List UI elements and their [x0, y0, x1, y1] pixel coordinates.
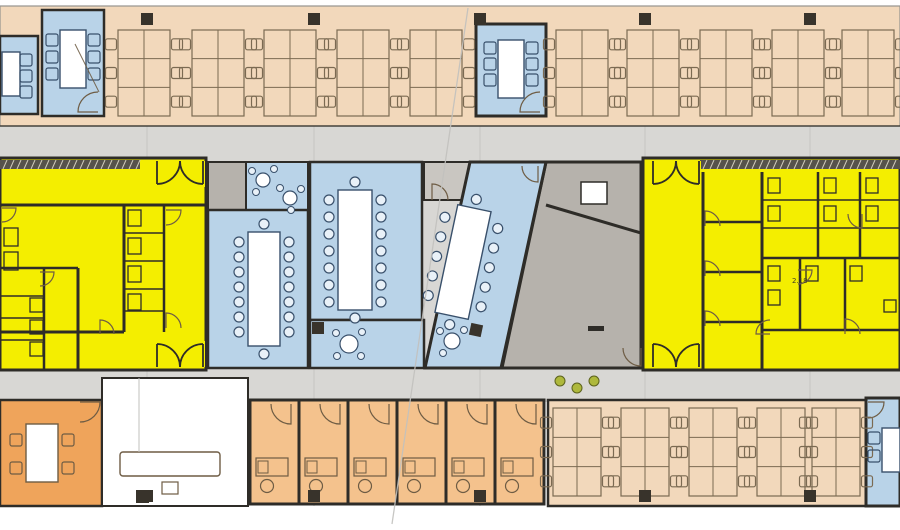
- chair: [324, 229, 334, 239]
- chair: [234, 252, 244, 262]
- chair: [333, 330, 340, 337]
- core-zone-left: [0, 158, 206, 370]
- chair: [324, 212, 334, 222]
- desk-cluster: [688, 30, 765, 116]
- chair: [376, 280, 386, 290]
- chair: [376, 212, 386, 222]
- chair: [253, 189, 260, 196]
- table: [882, 428, 900, 472]
- open-office-bottom: [548, 400, 866, 506]
- structural-column: [804, 13, 816, 25]
- round-table: [256, 173, 270, 187]
- chair: [298, 186, 305, 193]
- desk-cluster: [325, 30, 402, 116]
- table: [120, 452, 220, 476]
- office-floor-plan: 2.18: [0, 0, 900, 530]
- chair: [249, 168, 256, 175]
- chair: [359, 329, 366, 336]
- room-number-label: 2.18: [792, 277, 808, 285]
- structural-column: [639, 13, 651, 25]
- conference-table-2: [324, 177, 386, 323]
- chair: [376, 246, 386, 256]
- chair: [437, 328, 444, 335]
- chair: [350, 177, 360, 187]
- reception-counter: [120, 452, 220, 476]
- desk-cluster: [745, 408, 818, 496]
- chair: [234, 297, 244, 307]
- chair: [324, 246, 334, 256]
- structural-column: [312, 322, 324, 334]
- structural-column: [469, 323, 483, 337]
- floor-plan-canvas: 2.18: [0, 0, 900, 530]
- chair: [376, 229, 386, 239]
- core-zone-right: [643, 158, 900, 370]
- chair: [234, 267, 244, 277]
- chair: [324, 263, 334, 273]
- hall-table: [581, 182, 607, 204]
- chair: [324, 195, 334, 205]
- desk-cluster: [615, 30, 692, 116]
- chair: [277, 185, 284, 192]
- hall-marker: [588, 326, 604, 331]
- structural-column: [308, 490, 320, 502]
- blue-break-room: [310, 320, 424, 368]
- chair: [234, 327, 244, 337]
- chair: [284, 312, 294, 322]
- open-office-top: [0, 6, 900, 126]
- chair: [440, 350, 447, 357]
- chair: [324, 297, 334, 307]
- chair: [358, 353, 365, 360]
- desk-cluster: [106, 30, 183, 116]
- gray-store-room: [208, 162, 246, 210]
- structural-column: [474, 490, 486, 502]
- chair: [284, 267, 294, 277]
- plant: [555, 376, 565, 386]
- chair: [350, 313, 360, 323]
- chair: [376, 297, 386, 307]
- table: [26, 424, 58, 482]
- chair: [259, 349, 269, 359]
- chair: [259, 219, 269, 229]
- round-table: [283, 191, 297, 205]
- desk-cluster: [677, 408, 750, 496]
- desk-cluster: [541, 408, 614, 496]
- chair: [288, 207, 295, 214]
- table: [248, 232, 280, 346]
- round-table: [340, 335, 358, 353]
- structural-column: [308, 13, 320, 25]
- desk-cluster: [760, 30, 837, 116]
- chair: [234, 312, 244, 322]
- chair: [324, 280, 334, 290]
- chair: [376, 195, 386, 205]
- structural-column: [639, 490, 651, 502]
- chair: [284, 282, 294, 292]
- lobby: [102, 378, 248, 506]
- structural-column: [141, 13, 153, 25]
- chair: [284, 252, 294, 262]
- chair: [234, 282, 244, 292]
- round-table: [444, 333, 460, 349]
- structural-column: [804, 490, 816, 502]
- chair: [284, 327, 294, 337]
- desk-cluster: [609, 408, 682, 496]
- desk-cluster: [180, 30, 257, 116]
- chair: [284, 297, 294, 307]
- chair: [461, 327, 468, 334]
- chair: [376, 263, 386, 273]
- desk-cluster: [800, 408, 873, 496]
- plant: [589, 376, 599, 386]
- chair: [334, 353, 341, 360]
- structural-column: [474, 13, 486, 25]
- desk-cluster: [252, 30, 329, 116]
- chair: [234, 237, 244, 247]
- structural-column: [141, 490, 153, 502]
- chair: [271, 166, 278, 173]
- table: [2, 52, 20, 96]
- table: [498, 40, 524, 98]
- plant: [572, 383, 582, 393]
- chair: [284, 237, 294, 247]
- desk-cluster: [544, 30, 621, 116]
- hatched-wall: [700, 160, 900, 169]
- table: [338, 190, 372, 310]
- hatched-wall: [0, 160, 140, 169]
